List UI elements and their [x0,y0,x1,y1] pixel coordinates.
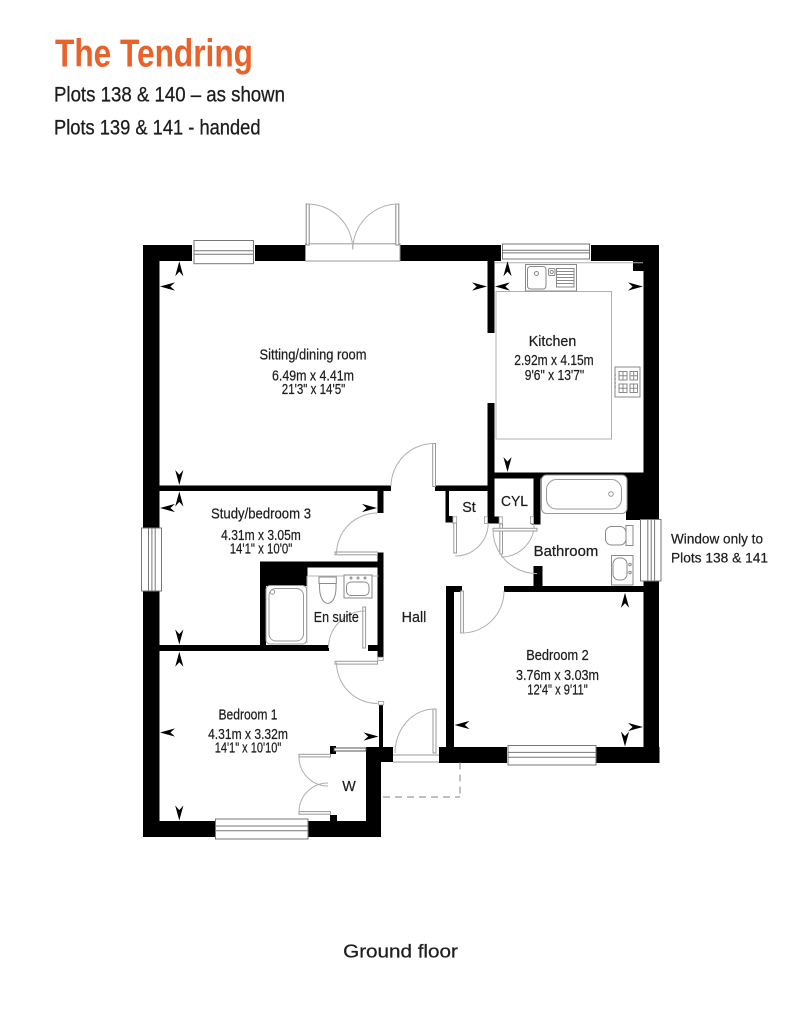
svg-text:Plots 138 & 140 – as shown: Plots 138 & 140 – as shown [54,83,285,107]
svg-text:CYL: CYL [501,494,528,510]
svg-text:Plots 139 & 141 - handed: Plots 139 & 141 - handed [54,116,261,140]
svg-text:21'3" x 14'5": 21'3" x 14'5" [282,382,346,398]
svg-text:En suite: En suite [314,610,359,626]
svg-text:Window only to: Window only to [671,531,763,546]
svg-text:Plots 138 & 141: Plots 138 & 141 [671,551,768,566]
svg-text:W: W [342,779,356,795]
svg-text:Ground floor: Ground floor [343,942,458,962]
svg-text:2.92m x 4.15m: 2.92m x 4.15m [514,353,593,369]
svg-text:Bedroom 2: Bedroom 2 [526,648,589,664]
svg-text:12'4" x 9'11": 12'4" x 9'11" [527,683,588,699]
svg-text:Hall: Hall [402,610,427,626]
svg-text:Bathroom: Bathroom [534,544,599,560]
svg-text:Sitting/dining room: Sitting/dining room [260,348,367,364]
svg-text:Study/bedroom 3: Study/bedroom 3 [211,507,311,523]
svg-text:9'6" x 13'7": 9'6" x 13'7" [525,368,584,384]
svg-text:St: St [462,500,476,516]
svg-text:14'1" x 10'0": 14'1" x 10'0" [230,542,293,558]
svg-text:14'1" x 10'10": 14'1" x 10'10" [215,740,282,756]
svg-text:The Tendring: The Tendring [55,33,253,76]
svg-text:Bedroom 1: Bedroom 1 [219,708,278,724]
svg-text:Kitchen: Kitchen [529,334,577,350]
